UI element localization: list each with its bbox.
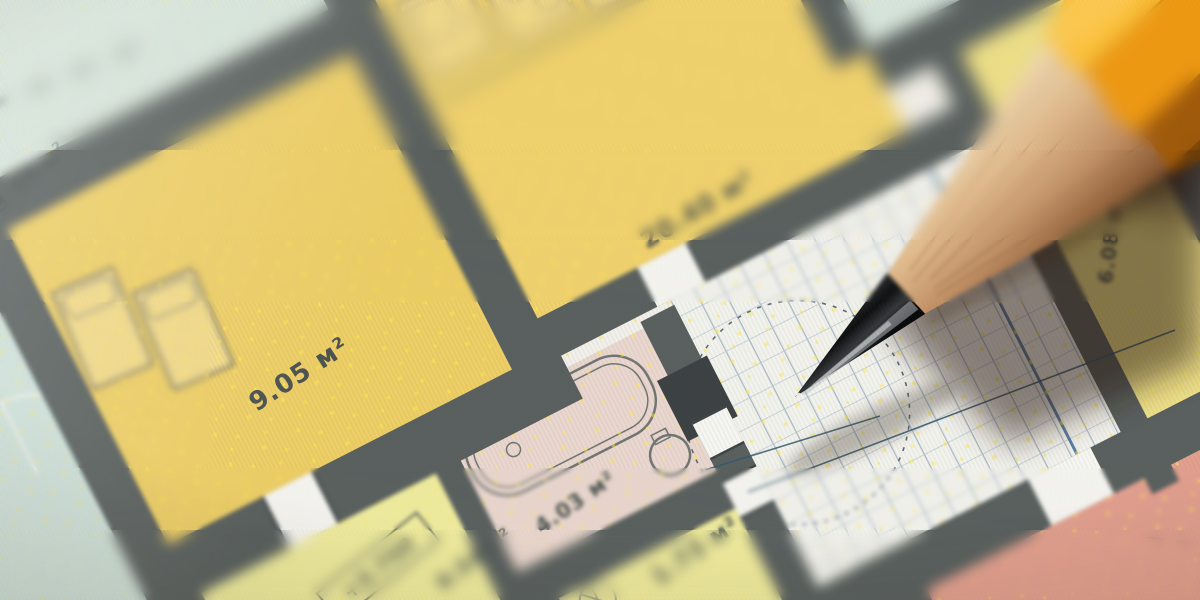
photo-scene: 9.05 м² 20.40 м² 3.95 м² 4.03 м² 1.73 м²… xyxy=(0,0,1200,600)
floor-plan-photo: 9.05 м² 20.40 м² 3.95 м² 4.03 м² 1.73 м²… xyxy=(0,0,1200,600)
